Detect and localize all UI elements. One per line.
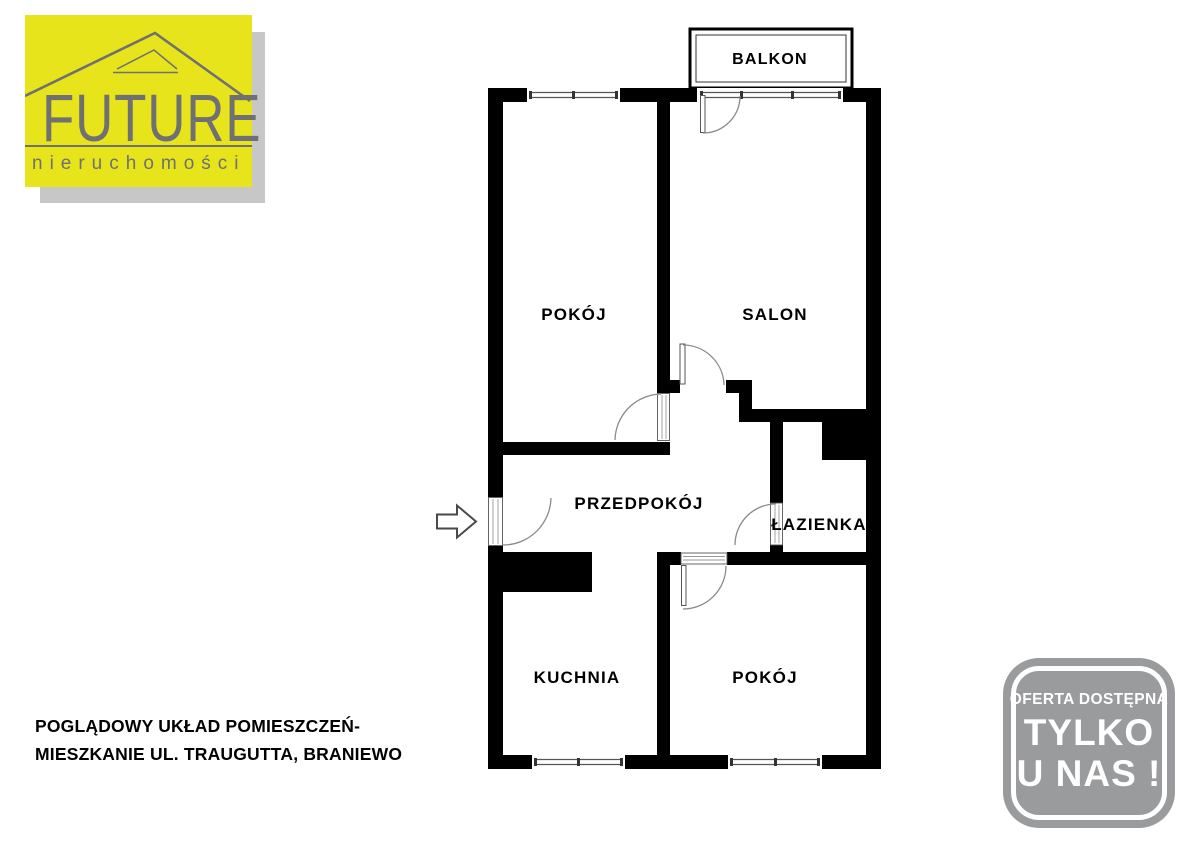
window-pokoj-top [527,88,620,102]
door-pokoj-bottom [681,553,727,609]
exclusive-offer-badge: OFERTA DOSTĘPNA TYLKO U NAS ! [1003,658,1175,828]
badge-offer-text: OFERTA DOSTĘPNA [1010,691,1168,709]
caption-line-2: MIESZKANIE UL. TRAUGUTTA, BRANIEWO [35,740,402,768]
room-label-pokoj-bottom: POKÓJ [732,668,798,688]
door-salon [680,344,724,385]
badge-unas-text: U NAS ! [1017,753,1162,794]
room-label-balkon: BALKON [732,51,808,69]
badge-tylko-text: TYLKO [1024,712,1154,753]
window-pokoj-bottom [728,755,822,769]
windows [527,88,843,769]
room-label-pokoj-top: POKÓJ [541,305,607,325]
page-canvas: FUTURE nieruchomości [0,0,1200,849]
entrance-arrow-icon [437,506,476,538]
room-label-kuchnia: KUCHNIA [534,668,621,688]
plan-caption: POGLĄDOWY UKŁAD POMIESZCZEŃ- MIESZKANIE … [35,712,402,768]
window-kuchnia [532,755,625,769]
entrance-door [489,498,552,546]
door-pokoj-top [615,394,670,441]
caption-line-1: POGLĄDOWY UKŁAD POMIESZCZEŃ- [35,712,402,740]
balcony-door-window [697,88,843,102]
room-label-przedpokoj: PRZEDPOKÓJ [574,494,703,514]
room-label-salon: SALON [742,305,808,325]
doors [489,96,783,610]
room-label-lazienka: ŁAZIENKA [771,515,867,535]
badge-border: OFERTA DOSTĘPNA TYLKO U NAS ! [1011,666,1167,820]
